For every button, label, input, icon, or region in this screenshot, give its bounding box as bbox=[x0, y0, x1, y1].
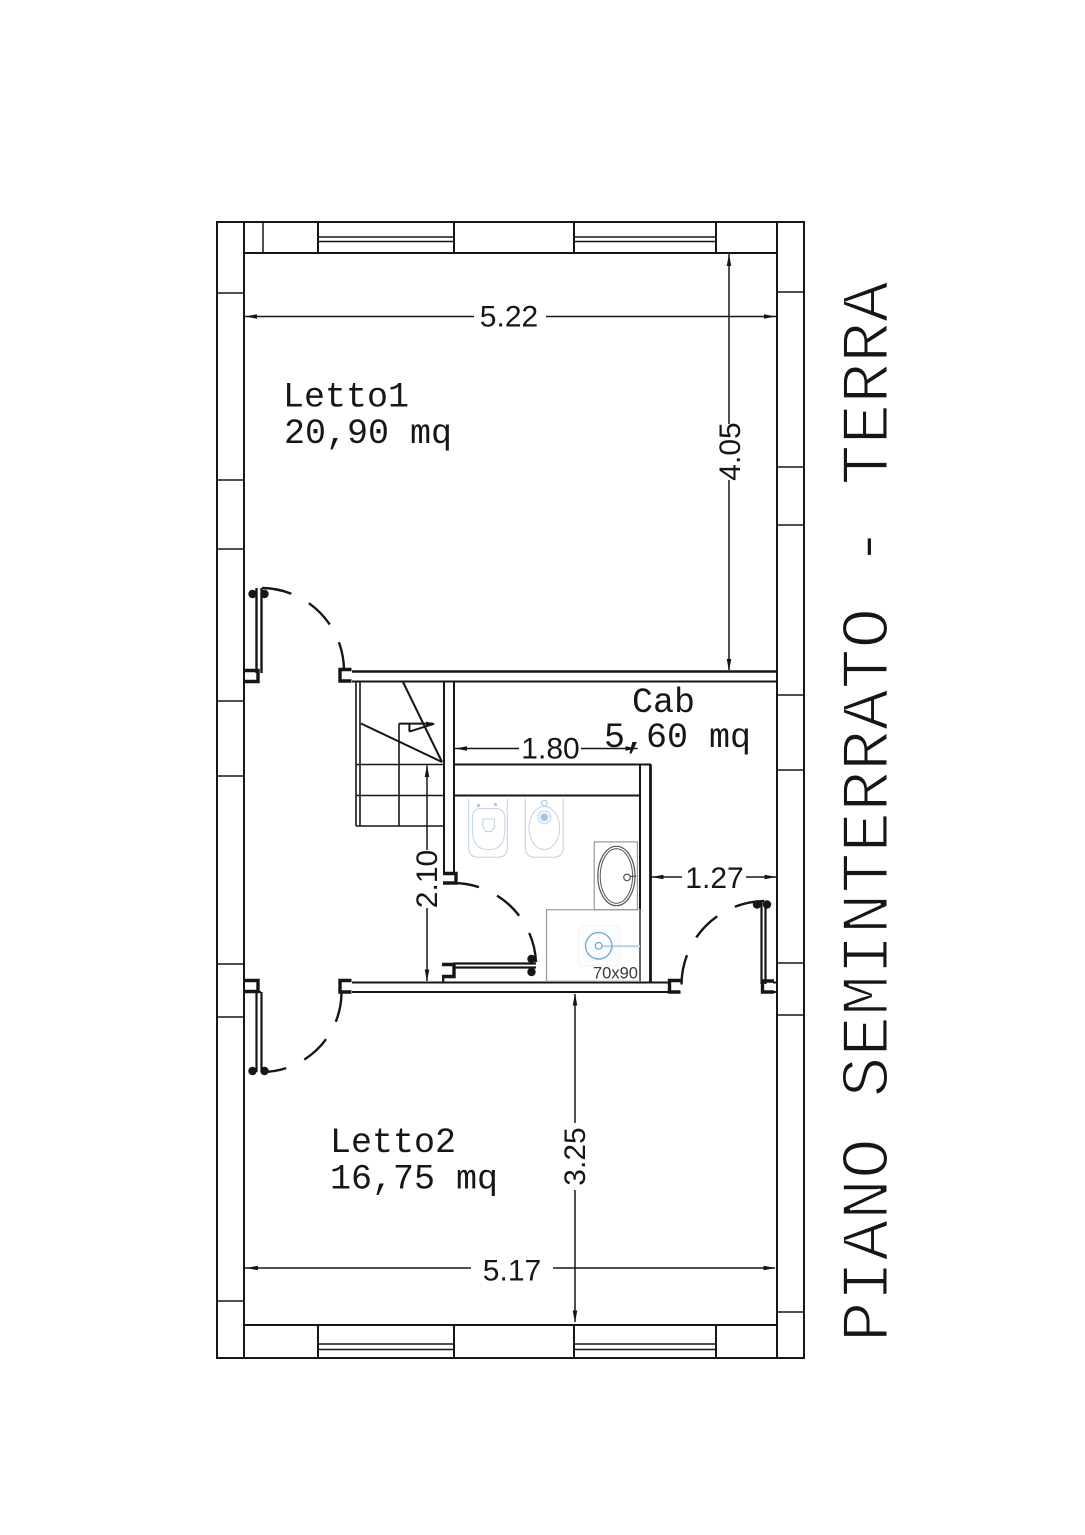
svg-text:4.05: 4.05 bbox=[714, 422, 747, 480]
svg-text:5.17: 5.17 bbox=[483, 1255, 541, 1288]
svg-text:1.27: 1.27 bbox=[685, 862, 743, 895]
svg-text:16,75 mq: 16,75 mq bbox=[330, 1160, 498, 1200]
svg-text:Letto1: Letto1 bbox=[283, 378, 409, 418]
svg-text:Cab: Cab bbox=[632, 683, 695, 723]
svg-text:5.22: 5.22 bbox=[480, 300, 538, 333]
svg-text:70x90: 70x90 bbox=[593, 965, 638, 983]
svg-text:Letto2: Letto2 bbox=[330, 1123, 456, 1163]
svg-text:5,60 mq: 5,60 mq bbox=[604, 718, 751, 758]
svg-text:20,90 mq: 20,90 mq bbox=[284, 414, 452, 454]
svg-text:PIANO SEMINTERRATO - TERRA: PIANO SEMINTERRATO - TERRA bbox=[832, 281, 909, 1342]
svg-text:2.10: 2.10 bbox=[411, 850, 444, 908]
svg-text:3.25: 3.25 bbox=[559, 1127, 592, 1185]
svg-text:1.80: 1.80 bbox=[521, 733, 579, 766]
